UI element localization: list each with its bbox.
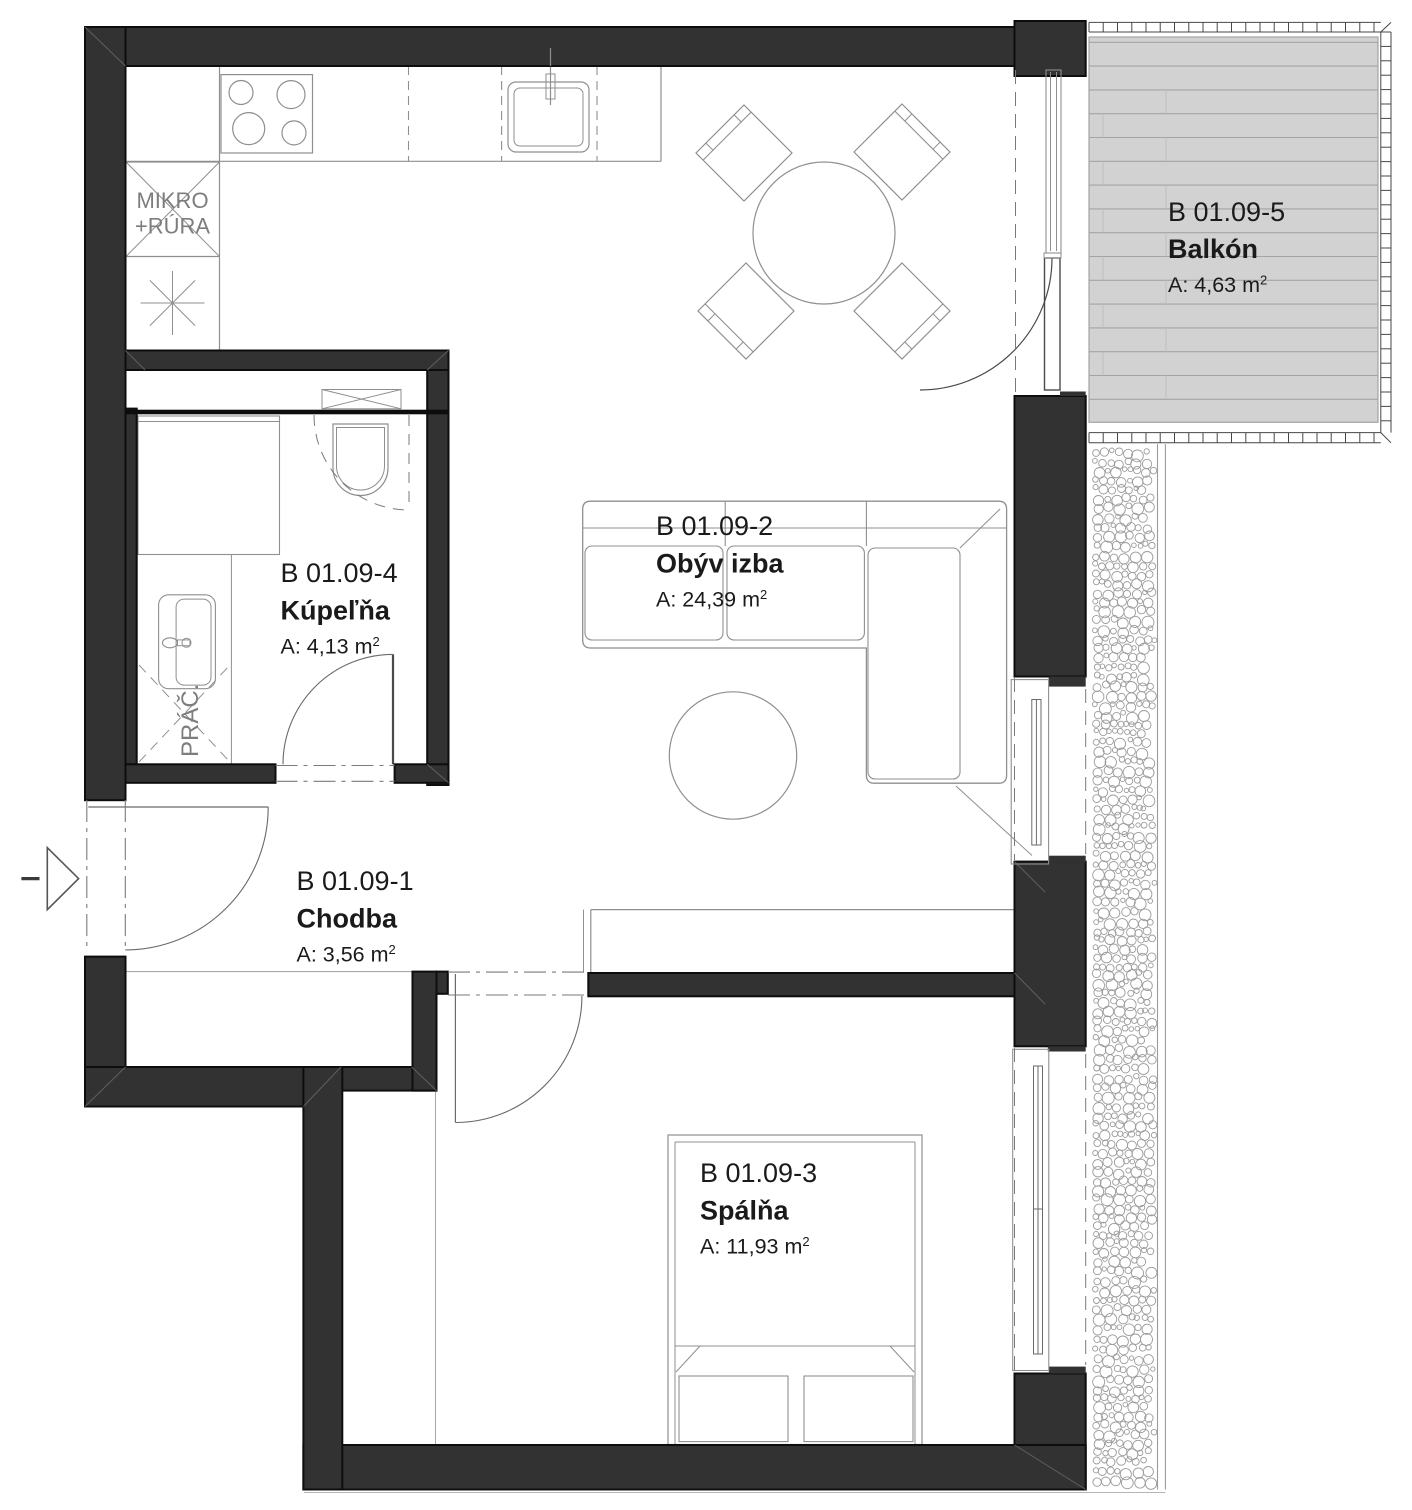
svg-text:B 01.09-5: B 01.09-5: [1168, 197, 1285, 227]
svg-text:B 01.09-2: B 01.09-2: [656, 511, 773, 541]
svg-text:PRÁČ.: PRÁČ.: [176, 684, 204, 757]
svg-text:Kúpeľňa: Kúpeľňa: [281, 596, 391, 626]
svg-text:A: 3,56 m2: A: 3,56 m2: [297, 942, 396, 967]
svg-text:MIKRO: MIKRO: [136, 188, 208, 213]
svg-text:A: 24,39 m2: A: 24,39 m2: [656, 587, 767, 612]
svg-text:A: 11,93 m2: A: 11,93 m2: [700, 1234, 810, 1259]
svg-text:Obýv izba: Obýv izba: [656, 549, 785, 579]
svg-text:A: 4,13 m2: A: 4,13 m2: [281, 634, 380, 659]
svg-text:Spálňa: Spálňa: [700, 1196, 790, 1226]
svg-text:+RÚRA: +RÚRA: [135, 214, 211, 239]
svg-text:B 01.09-3: B 01.09-3: [700, 1158, 817, 1188]
svg-text:B 01.09-4: B 01.09-4: [281, 558, 398, 588]
svg-text:Chodba: Chodba: [297, 904, 398, 934]
svg-text:B 01.09-1: B 01.09-1: [297, 866, 414, 896]
svg-text:A: 4,63 m2: A: 4,63 m2: [1168, 273, 1267, 298]
svg-text:Balkón: Balkón: [1168, 234, 1258, 264]
